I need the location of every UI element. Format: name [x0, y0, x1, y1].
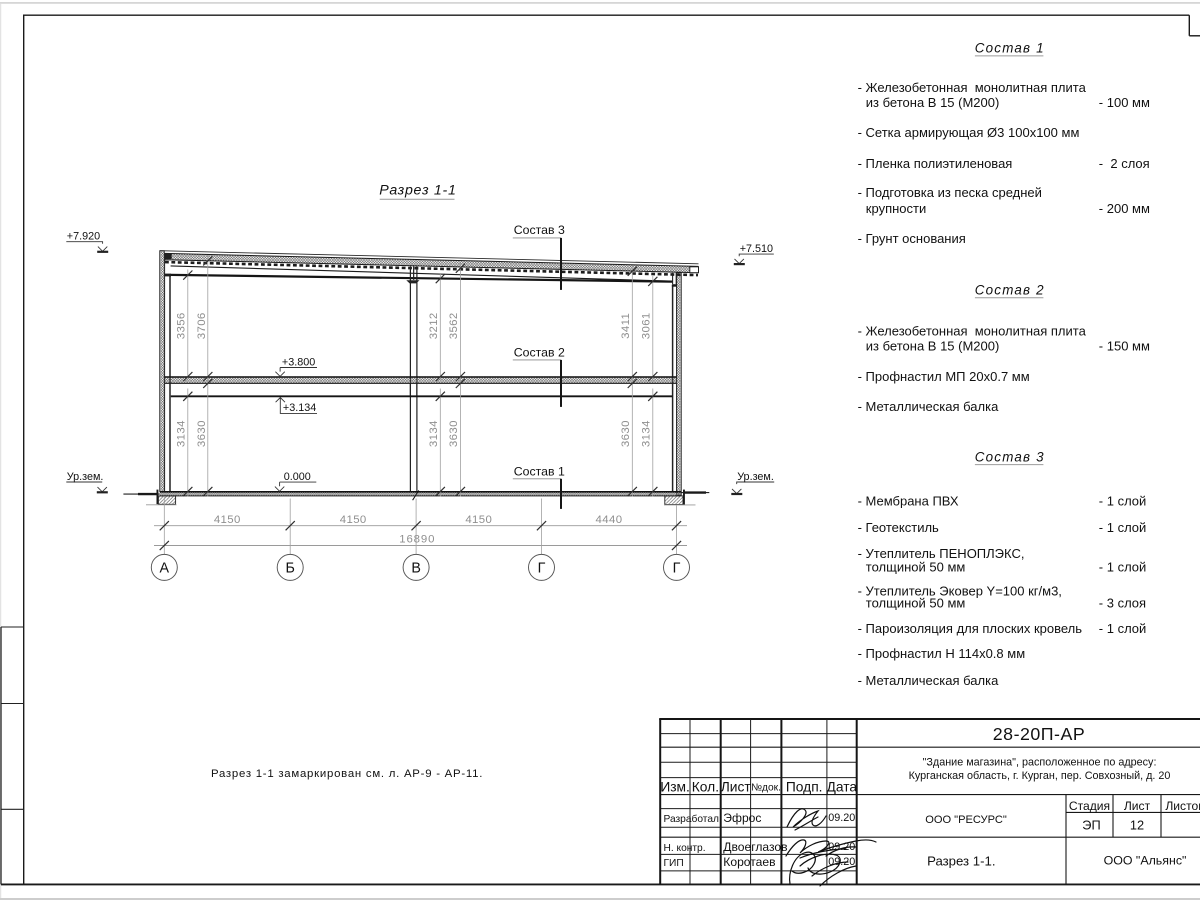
- svg-text:- 1 слой: - 1 слой: [1099, 494, 1147, 509]
- svg-text:- Пароизоляция для плоских кро: - Пароизоляция для плоских кровель: [858, 621, 1083, 636]
- svg-text:А: А: [160, 560, 170, 576]
- svg-text:Разработал: Разработал: [664, 813, 720, 825]
- svg-text:толщиной 50 мм: толщиной 50 мм: [866, 596, 966, 611]
- svg-text:3134: 3134: [641, 420, 653, 447]
- svg-text:из бетона В 15 (М200): из бетона В 15 (М200): [866, 339, 1000, 354]
- svg-text:толщиной 50 мм: толщиной 50 мм: [866, 560, 966, 575]
- svg-text:ЭП: ЭП: [1082, 818, 1100, 833]
- svg-text:3706: 3706: [196, 312, 208, 339]
- svg-text:- 2 слоя: - 2 слоя: [1099, 156, 1150, 171]
- svg-text:Г: Г: [673, 560, 681, 576]
- svg-text:Листов: Листов: [1165, 799, 1200, 813]
- svg-text:3134: 3134: [176, 420, 188, 447]
- svg-text:- Геотекстиль: - Геотекстиль: [858, 520, 939, 535]
- svg-text:4150: 4150: [340, 514, 367, 526]
- svg-text:Эфрос: Эфрос: [723, 811, 761, 825]
- svg-text:- Металлическая балка: - Металлическая балка: [858, 399, 999, 414]
- svg-text:из бетона В 15 (М200): из бетона В 15 (М200): [866, 95, 1000, 110]
- svg-text:- 1 слой: - 1 слой: [1099, 621, 1147, 636]
- svg-text:- 1 слой: - 1 слой: [1099, 560, 1147, 575]
- svg-text:3411: 3411: [620, 313, 632, 339]
- svg-text:Состав 2: Состав 2: [514, 345, 565, 359]
- svg-text:3630: 3630: [620, 420, 632, 447]
- svg-text:- Пленка полиэтиленовая: - Пленка полиэтиленовая: [858, 156, 1013, 171]
- svg-text:Изм.: Изм.: [660, 779, 690, 794]
- svg-text:Состав 1: Состав 1: [975, 41, 1045, 56]
- svg-text:09.20: 09.20: [828, 812, 855, 824]
- svg-text:4440: 4440: [596, 514, 623, 526]
- svg-text:Б: Б: [286, 560, 295, 576]
- svg-text:"Здание магазина", расположенн: "Здание магазина", расположенное по адре…: [923, 756, 1157, 768]
- svg-text:+3.134: +3.134: [283, 402, 316, 414]
- svg-text:4150: 4150: [214, 514, 241, 526]
- svg-text:- Подготовка из песка средней: - Подготовка из песка средней: [858, 185, 1042, 200]
- svg-text:28-20П-АР: 28-20П-АР: [993, 724, 1085, 744]
- svg-text:ООО "Альянс": ООО "Альянс": [1104, 854, 1187, 868]
- svg-text:- Профнастил МП 20х0.7 мм: - Профнастил МП 20х0.7 мм: [858, 369, 1030, 384]
- svg-text:Состав 1: Состав 1: [514, 464, 565, 478]
- svg-text:16890: 16890: [399, 534, 435, 546]
- svg-text:ООО "РЕСУРС": ООО "РЕСУРС": [925, 814, 1007, 826]
- svg-text:3061: 3061: [641, 312, 653, 339]
- svg-text:Состав 3: Состав 3: [514, 223, 565, 237]
- svg-text:В: В: [411, 560, 421, 576]
- svg-text:Ур.зем.: Ур.зем.: [67, 471, 104, 483]
- svg-text:Стадия: Стадия: [1069, 799, 1110, 813]
- svg-text:0.000: 0.000: [284, 471, 311, 483]
- svg-text:Курганская область, г. Курган,: Курганская область, г. Курган, пер. Совх…: [909, 770, 1171, 782]
- svg-text:Дата: Дата: [827, 779, 858, 794]
- svg-text:12: 12: [1130, 818, 1144, 833]
- svg-text:- Металлическая балка: - Металлическая балка: [858, 673, 999, 688]
- svg-text:3356: 3356: [176, 312, 188, 339]
- svg-text:3630: 3630: [196, 420, 208, 447]
- svg-text:- Железобетонная монолитная п: - Железобетонная монолитная плита: [858, 80, 1087, 95]
- svg-text:3630: 3630: [448, 420, 460, 447]
- svg-text:крупности: крупности: [866, 201, 926, 216]
- svg-text:- 200 мм: - 200 мм: [1099, 201, 1150, 216]
- svg-text:Лист: Лист: [1124, 799, 1151, 813]
- svg-text:- 3 слоя: - 3 слоя: [1099, 596, 1146, 611]
- svg-text:- 150 мм: - 150 мм: [1099, 339, 1150, 354]
- svg-text:Разрез 1-1: Разрез 1-1: [379, 183, 456, 199]
- svg-text:- 100 мм: - 100 мм: [1099, 95, 1150, 110]
- svg-text:Состав 2: Состав 2: [975, 283, 1045, 298]
- svg-text:Г: Г: [538, 560, 546, 576]
- svg-text:Коротаев: Коротаев: [723, 855, 775, 869]
- svg-text:- Мембрана ПВХ: - Мембрана ПВХ: [858, 494, 959, 509]
- svg-text:- Железобетонная монолитная п: - Железобетонная монолитная плита: [858, 324, 1087, 339]
- svg-text:№док.: №док.: [751, 782, 781, 793]
- svg-text:+3.800: +3.800: [282, 356, 315, 368]
- svg-text:Подп.: Подп.: [786, 779, 823, 794]
- svg-text:+7.920: +7.920: [67, 231, 100, 243]
- svg-text:Разрез 1-1 замаркирован см. л.: Разрез 1-1 замаркирован см. л. АР-9 - АР…: [211, 768, 483, 780]
- svg-text:- Профнастил Н 114х0.8 мм: - Профнастил Н 114х0.8 мм: [858, 646, 1026, 661]
- svg-text:4150: 4150: [465, 514, 492, 526]
- svg-text:Н. контр.: Н. контр.: [664, 843, 706, 854]
- svg-text:3562: 3562: [448, 312, 460, 339]
- svg-text:+7.510: +7.510: [740, 243, 773, 255]
- svg-text:Разрез 1-1.: Разрез 1-1.: [927, 853, 995, 868]
- svg-text:Кол.: Кол.: [692, 779, 719, 794]
- svg-text:Ур.зем.: Ур.зем.: [737, 471, 774, 483]
- svg-text:- Сетка армирующая Ø3 100х100: - Сетка армирующая Ø3 100х100 мм: [858, 125, 1080, 140]
- svg-text:Состав 3: Состав 3: [975, 450, 1045, 465]
- svg-text:ГИП: ГИП: [664, 858, 684, 869]
- svg-text:Двоеглазов: Двоеглазов: [723, 840, 787, 854]
- svg-text:Лист: Лист: [721, 779, 752, 794]
- svg-text:3212: 3212: [428, 312, 440, 339]
- svg-text:- Грунт основания: - Грунт основания: [858, 231, 966, 246]
- svg-text:3134: 3134: [428, 420, 440, 447]
- svg-text:- 1 слой: - 1 слой: [1099, 520, 1147, 535]
